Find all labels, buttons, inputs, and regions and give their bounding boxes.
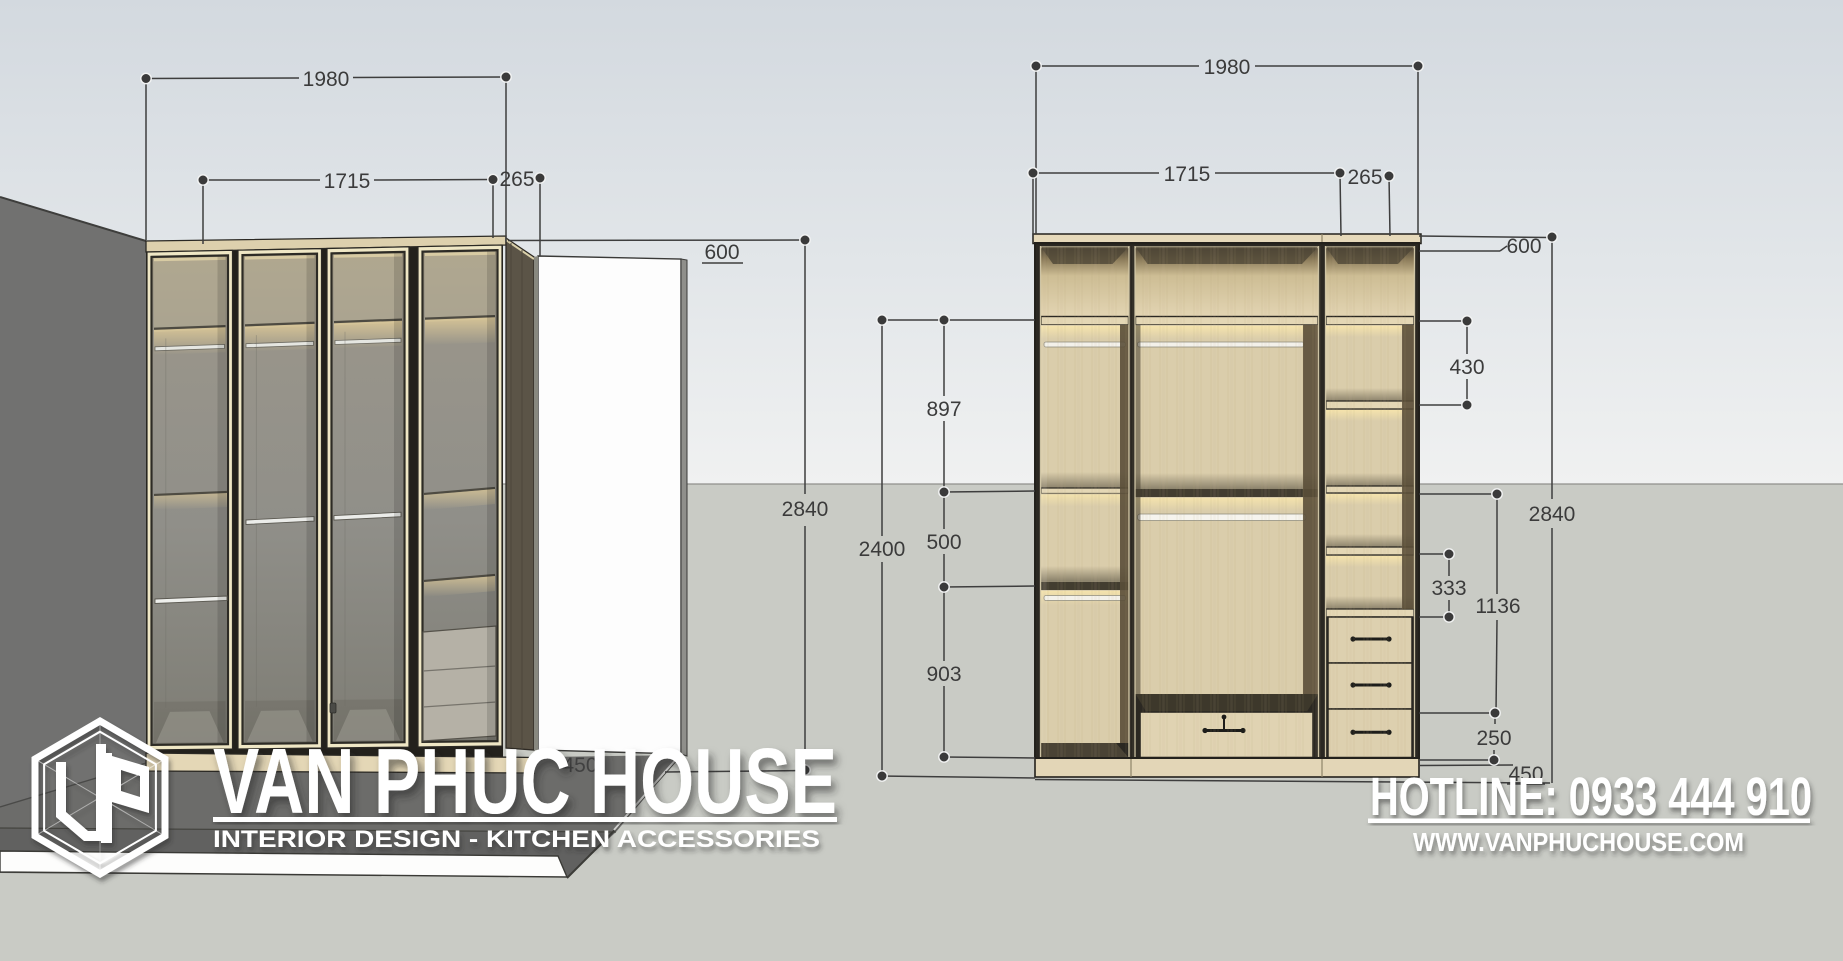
- svg-text:1715: 1715: [1164, 163, 1211, 186]
- svg-text:430: 430: [1449, 356, 1484, 379]
- svg-text:1980: 1980: [1204, 56, 1251, 79]
- svg-text:265: 265: [499, 168, 534, 191]
- svg-text:HOTLINE: 0933 444 910: HOTLINE: 0933 444 910: [1370, 767, 1812, 827]
- svg-text:1136: 1136: [1475, 595, 1520, 618]
- svg-text:903: 903: [926, 663, 961, 686]
- svg-text:INTERIOR DESIGN - KITCHEN ACCE: INTERIOR DESIGN - KITCHEN ACCESSORIES: [213, 826, 820, 853]
- svg-text:265: 265: [1347, 166, 1382, 189]
- svg-text:600: 600: [704, 241, 739, 264]
- svg-text:897: 897: [926, 398, 961, 421]
- svg-text:1715: 1715: [324, 170, 371, 193]
- svg-text:1980: 1980: [303, 68, 350, 91]
- svg-text:600: 600: [1506, 235, 1541, 258]
- svg-text:2400: 2400: [859, 538, 906, 561]
- svg-text:WWW.VANPHUCHOUSE.COM: WWW.VANPHUCHOUSE.COM: [1413, 827, 1744, 857]
- svg-text:500: 500: [926, 531, 961, 554]
- svg-text:333: 333: [1431, 577, 1466, 600]
- svg-text:250: 250: [1476, 727, 1511, 750]
- svg-text:2840: 2840: [1529, 503, 1576, 526]
- svg-text:2840: 2840: [782, 498, 829, 521]
